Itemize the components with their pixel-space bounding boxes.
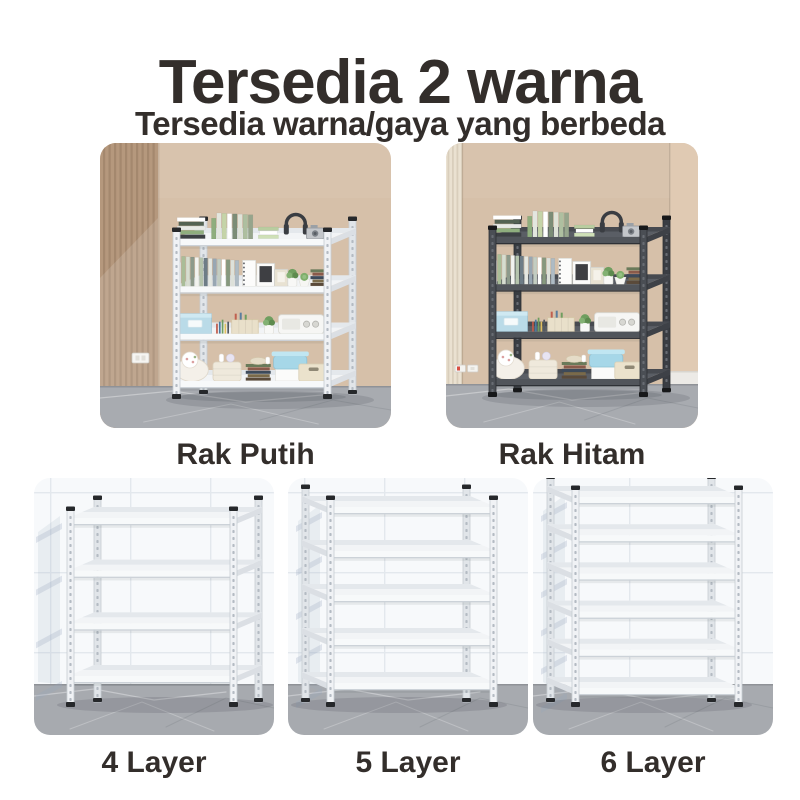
layer-variant-label-5: 5 Layer	[288, 746, 528, 780]
rack-6-layer-illustration	[533, 478, 773, 735]
photo-black-rack-room	[446, 143, 698, 428]
page-subtitle: Tersedia warna/gaya yang berbeda	[0, 105, 800, 143]
photo-5-layer	[288, 478, 528, 735]
rack-4-layer-illustration	[34, 478, 274, 735]
white-rack-illustration	[100, 143, 391, 428]
layer-variant-label-6: 6 Layer	[533, 746, 773, 780]
color-variant-label-black: Rak Hitam	[446, 438, 698, 472]
rack-5-layer-illustration	[288, 478, 528, 735]
color-variant-label-white: Rak Putih	[100, 438, 391, 472]
layer-variant-label-4: 4 Layer	[34, 746, 274, 780]
photo-6-layer	[533, 478, 773, 735]
photo-white-rack-room	[100, 143, 391, 428]
black-rack-illustration	[446, 143, 698, 428]
photo-4-layer	[34, 478, 274, 735]
product-poster: Tersedia 2 warna Tersedia warna/gaya yan…	[0, 0, 800, 800]
